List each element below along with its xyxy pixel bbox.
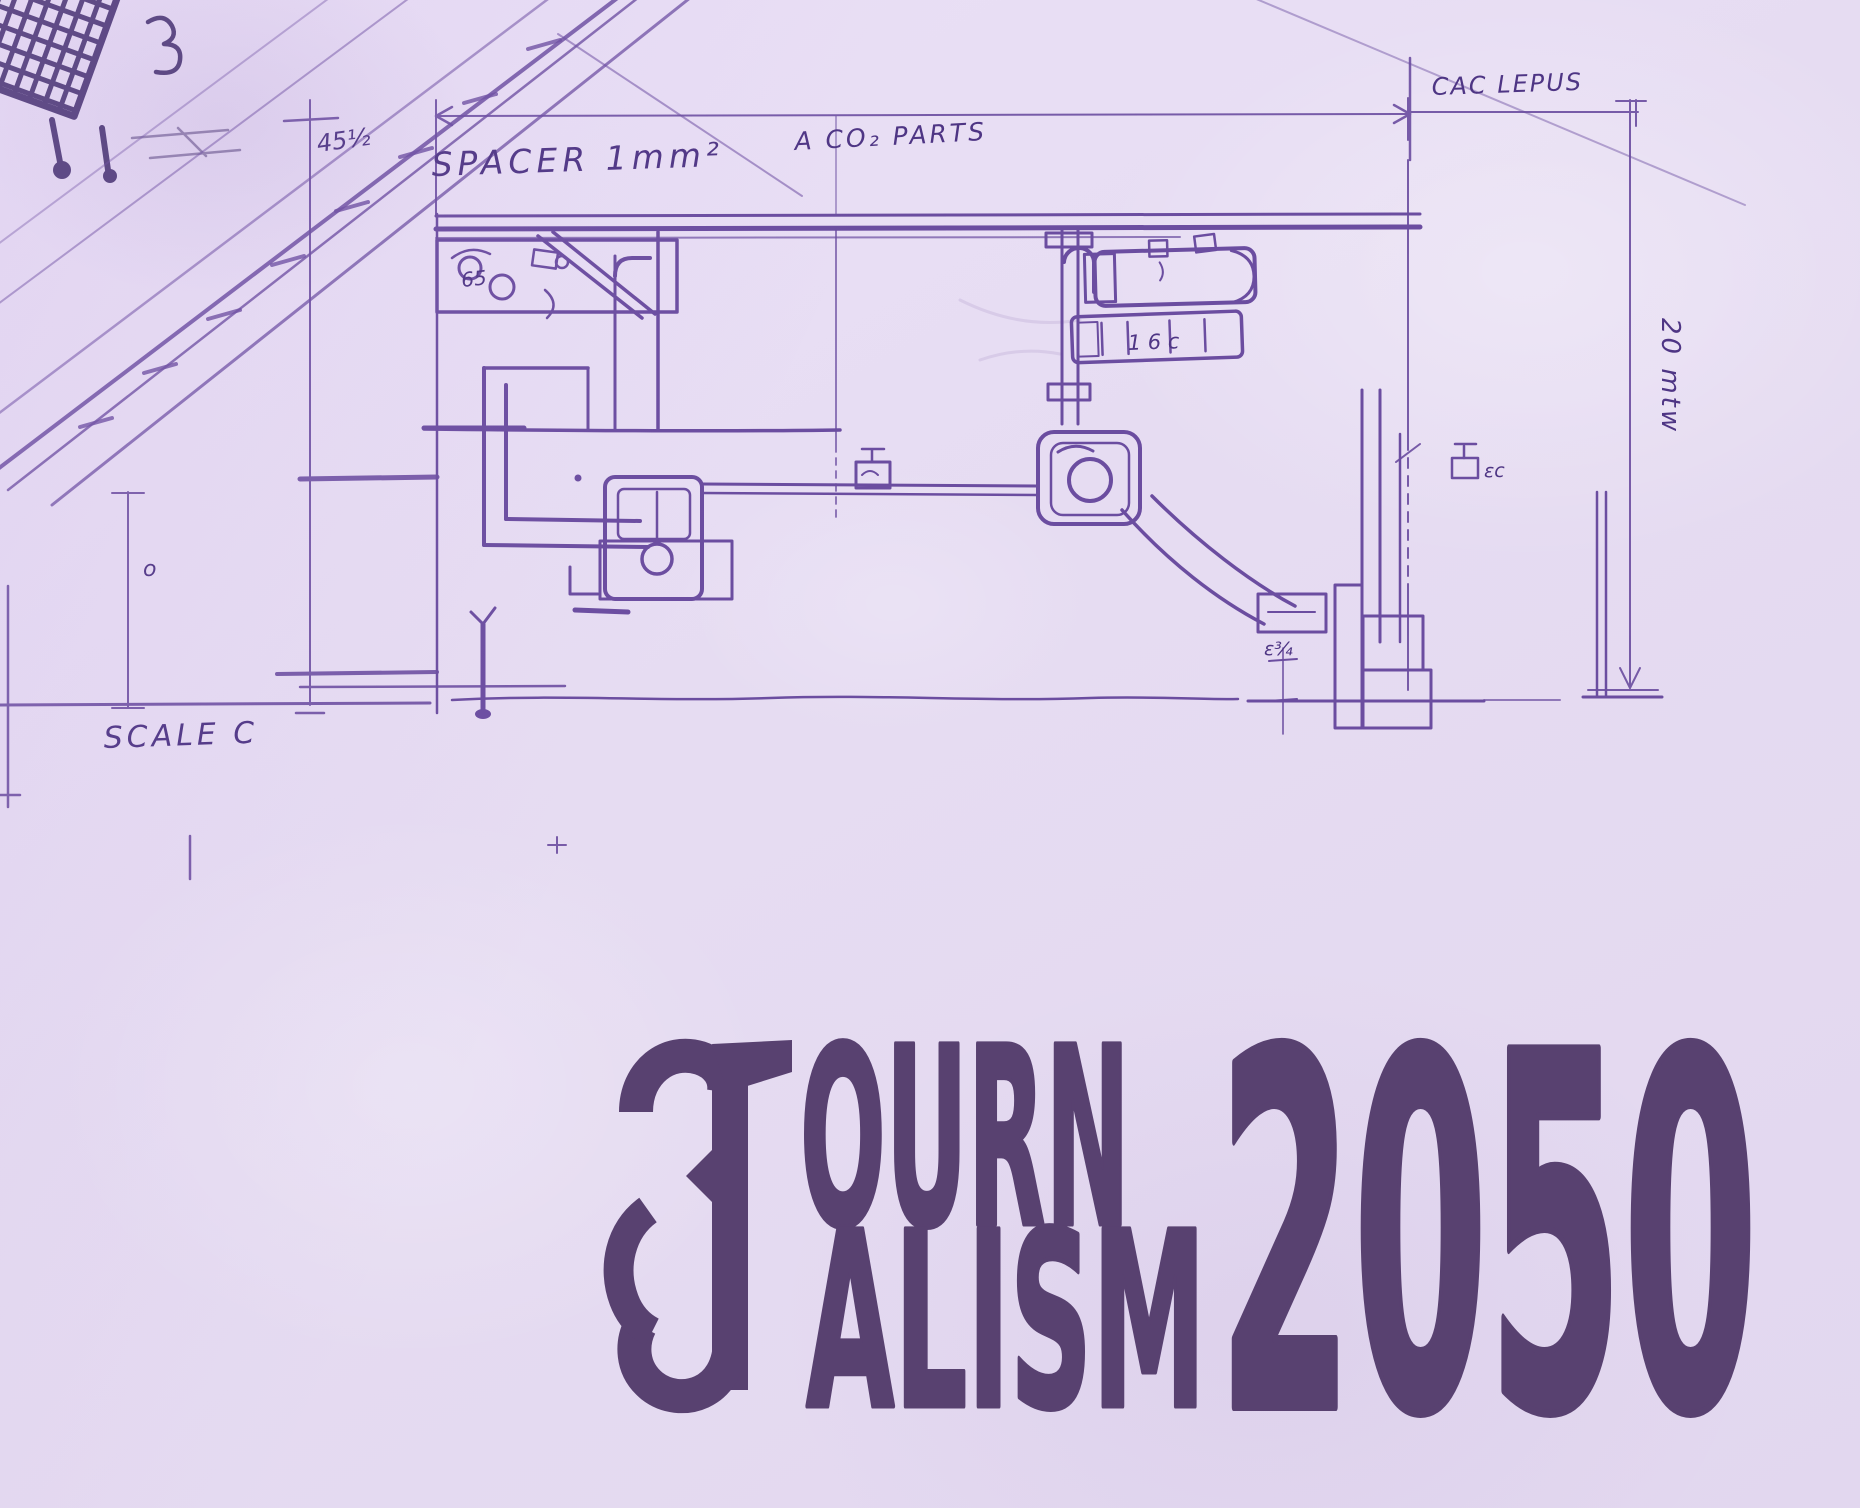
logo-initial-j xyxy=(619,1040,792,1396)
small-o-mark: o xyxy=(143,557,156,582)
roller-assembly xyxy=(1038,432,1140,524)
annotations: SPACER 1mm² A CO₂ PARTS CAC LEPUS 20 mtw… xyxy=(103,68,1685,756)
step-mark: ε¾ xyxy=(1264,638,1293,660)
housing-mark: 65 xyxy=(460,265,488,292)
building-foot-blob xyxy=(53,161,71,179)
machine-drawing xyxy=(424,214,1662,734)
scale-label: SCALE C xyxy=(103,716,259,756)
top-right-label: CAC LEPUS xyxy=(1431,68,1583,101)
pump-assembly xyxy=(570,475,732,613)
step-structure xyxy=(1248,390,1662,734)
diagonal-brace xyxy=(538,232,655,318)
upper-cylinder xyxy=(1084,233,1256,306)
parts-label: A CO₂ PARTS xyxy=(792,117,988,156)
cylinder-mark: 1 6 c xyxy=(1127,329,1180,355)
ground-line xyxy=(452,697,1238,700)
journalism-2050-poster: SPACER 1mm² A CO₂ PARTS CAC LEPUS 20 mtw… xyxy=(0,0,1860,1508)
blueprint-sketch: SPACER 1mm² A CO₂ PARTS CAC LEPUS 20 mtw… xyxy=(0,0,1860,1508)
logo: OURN ALISM 2050 xyxy=(619,951,1758,1508)
logo-line2: ALISM xyxy=(806,1181,1206,1464)
chute xyxy=(1122,496,1326,632)
dimension-lines xyxy=(0,58,1658,879)
figure-scribble xyxy=(148,18,180,73)
pipe-run xyxy=(702,449,1038,495)
spacer-label: SPACER 1mm² xyxy=(431,135,725,184)
fitting-mark: εc xyxy=(1484,460,1505,482)
drain xyxy=(471,608,495,719)
building-foot-blob xyxy=(103,169,117,183)
logo-year: 2050 xyxy=(1218,951,1758,1508)
right-fitting xyxy=(1452,444,1478,478)
right-dim-label: 20 mtw xyxy=(1655,318,1685,434)
left-dim-small-label: 45½ xyxy=(315,123,372,158)
